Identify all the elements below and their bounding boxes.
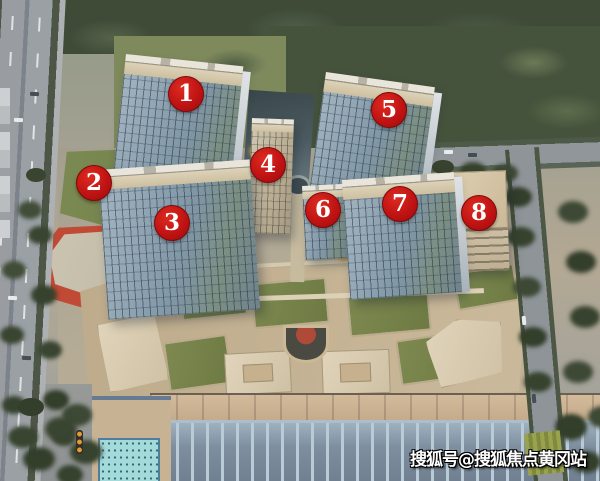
building-marker-5: 5 [371, 92, 407, 128]
green-roof [250, 277, 330, 329]
canopy-roof [321, 349, 390, 395]
green-roof [163, 334, 233, 392]
aerial-rendering: 1 2 3 4 5 6 7 8 搜狐号@搜狐焦点黄冈站 [0, 0, 600, 481]
street-trees [26, 168, 46, 182]
tower-glass-facade [99, 179, 260, 319]
car [22, 356, 31, 360]
buildings-far-left [0, 88, 10, 238]
building-marker-6: 6 [305, 192, 341, 228]
car [522, 316, 527, 325]
amphitheater-plaza [283, 325, 329, 363]
sohu-watermark: 搜狐号@搜狐焦点黄冈站 [410, 450, 586, 470]
car [30, 92, 39, 96]
building-marker-8: 8 [461, 195, 497, 231]
car [14, 118, 23, 122]
building-marker-1: 1 [168, 76, 204, 112]
building-marker-3: 3 [154, 205, 190, 241]
building-marker-2: 2 [76, 165, 112, 201]
hall-glass-atrium [98, 438, 160, 481]
canopy-roof [224, 350, 292, 395]
car [444, 150, 453, 154]
lane-marking [0, 0, 15, 481]
building-marker-7: 7 [382, 186, 418, 222]
car [532, 394, 537, 403]
car [8, 296, 17, 300]
street-trees [18, 398, 44, 416]
car [468, 153, 477, 157]
traffic-light [76, 430, 83, 454]
building-marker-4: 4 [250, 147, 286, 183]
